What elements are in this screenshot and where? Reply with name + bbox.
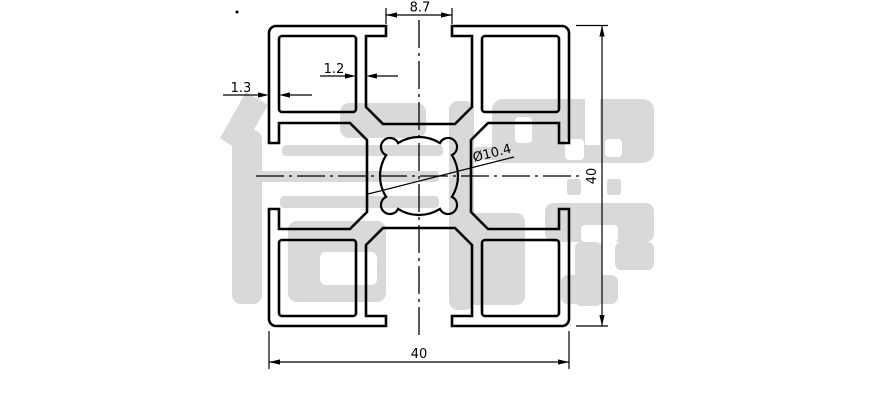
arrow-right-icon — [258, 92, 269, 97]
watermark-hole — [585, 99, 600, 145]
watermark-hole — [320, 252, 377, 285]
drawing-canvas: 信牌 — [0, 0, 880, 420]
dim-slot-opening-label: 8.7 — [410, 1, 431, 16]
arrow-right-icon — [441, 12, 452, 17]
stray-dot — [236, 11, 239, 14]
watermark-stroke — [451, 213, 525, 305]
arrow-right-icon — [558, 359, 569, 364]
watermark-stroke — [340, 103, 426, 138]
watermark-hole — [605, 139, 622, 157]
dim-overall-width-label: 40 — [411, 347, 428, 362]
watermark-stroke — [232, 130, 262, 304]
watermark-stroke — [607, 179, 621, 195]
arrow-left-icon — [366, 73, 377, 78]
arrow-left-icon — [279, 92, 290, 97]
dim-inner-wall: 1.2 — [320, 62, 398, 79]
arrow-left-icon — [269, 359, 280, 364]
dim-outer-wall-label: 1.3 — [231, 81, 252, 96]
arrow-left-icon — [386, 12, 397, 17]
profile-drawing: 信牌 — [0, 0, 880, 420]
dim-overall-width: 40 — [269, 331, 569, 369]
watermark-stroke — [615, 242, 654, 270]
arrow-down-icon — [599, 315, 604, 326]
corner-cavity-top-left — [279, 36, 356, 112]
watermark-hole — [515, 117, 532, 143]
dim-outer-wall: 1.3 — [223, 81, 312, 98]
arrow-up-icon — [599, 26, 604, 37]
dim-overall-height-label: 40 — [585, 168, 600, 185]
arrow-right-icon — [345, 73, 356, 78]
dim-inner-wall-label: 1.2 — [324, 62, 345, 77]
dimension-annotations: 8.7 1.2 1.3 Ø10.4 40 — [223, 1, 608, 370]
watermark-hole — [581, 225, 618, 242]
watermark-stroke — [567, 179, 581, 195]
watermark-stroke — [280, 196, 439, 208]
